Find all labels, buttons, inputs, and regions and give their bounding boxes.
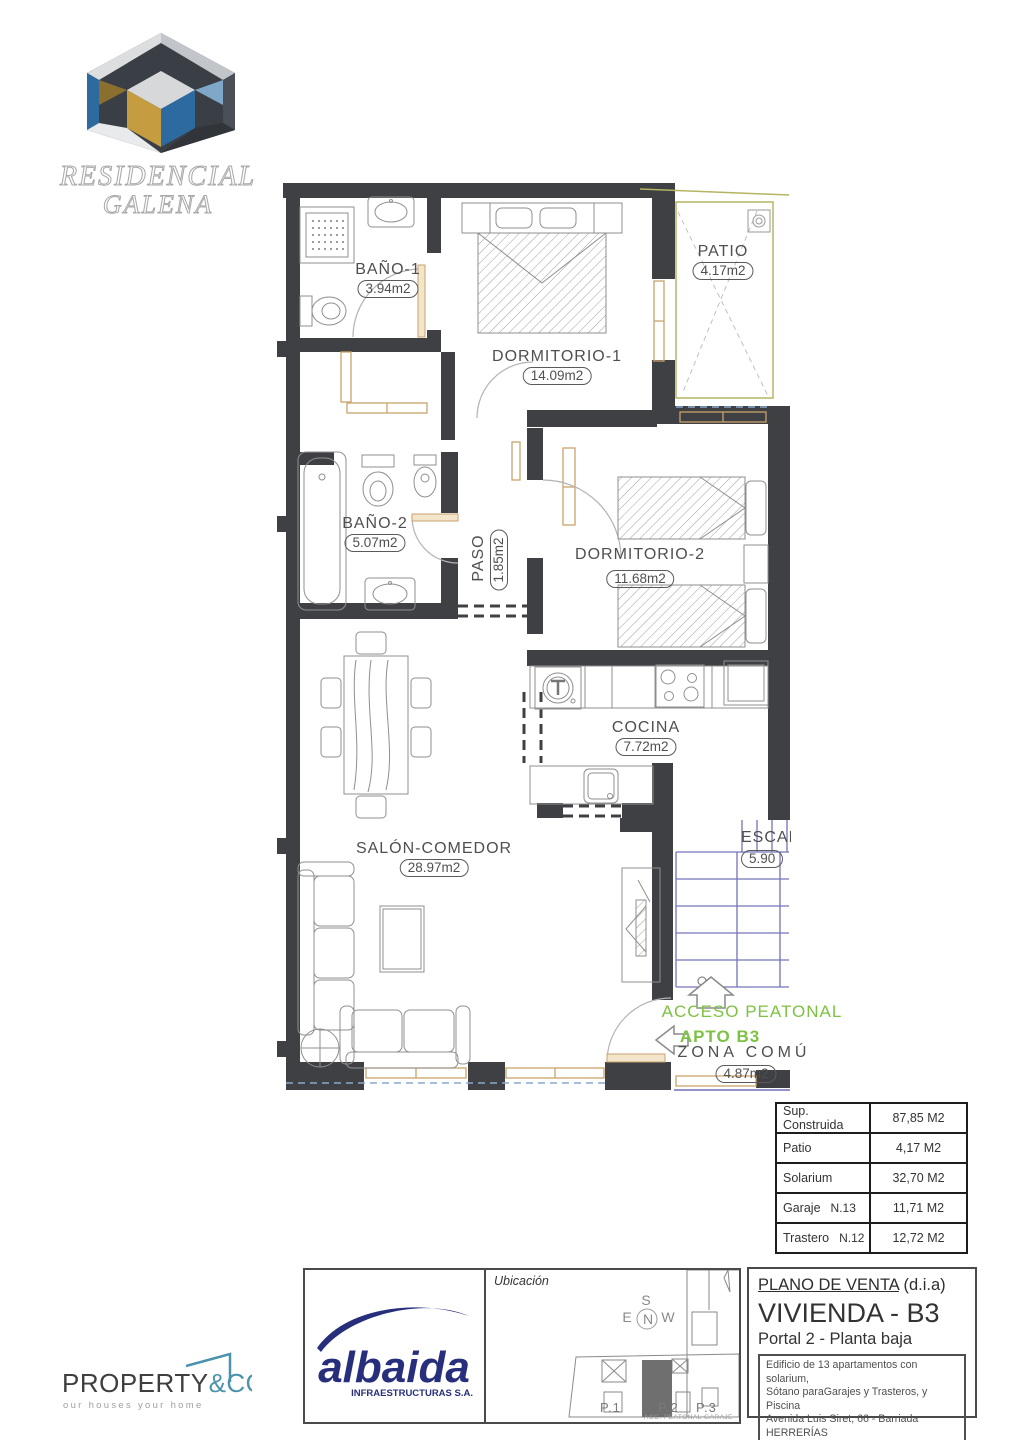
room-label-patio: PATIO <box>698 243 749 261</box>
svg-text:W: W <box>661 1309 675 1325</box>
room-area-dormitorio2: 11.68m2 <box>606 570 674 588</box>
room-area-paso: 1.85m2 <box>490 529 508 590</box>
svg-text:S: S <box>641 1292 650 1308</box>
areas-table: Sup. Construida 87,85 M2 Patio 4,17 M2 S… <box>775 1102 968 1254</box>
room-area-bano2: 5.07m2 <box>344 534 405 552</box>
site-map-caption: ACC. PEATONAL GARAJE <box>644 1414 733 1421</box>
row-value: 32,70 M2 <box>871 1171 966 1185</box>
table-row: GarajeN.13 11,71 M2 <box>777 1192 966 1222</box>
compass-icon: S E N W <box>622 1292 675 1329</box>
room-area-zona-comun: 4.87m2 <box>715 1065 776 1083</box>
room-area-cocina: 7.72m2 <box>615 738 676 756</box>
room-label-bano1: BAÑO-1 <box>355 261 421 279</box>
portal-subtitle: Portal 2 - Planta baja <box>758 1330 966 1349</box>
plan-type-suffix: (d.i.a) <box>904 1276 946 1294</box>
row-label: Solarium <box>783 1171 832 1185</box>
property-name: PROPERTY <box>62 1368 209 1398</box>
floor-plan-page: BAÑO-1 3.94m2 DORMITORIO-1 14.09m2 PATIO… <box>0 0 1018 1440</box>
room-area-patio: 4.17m2 <box>692 262 753 280</box>
shower-dots <box>312 220 344 250</box>
description-line: Edificio de 13 apartamentos con solarium… <box>766 1359 958 1386</box>
room-label-escalera: ESCAL 5.90 <box>741 829 791 875</box>
property-suffix: &CO <box>209 1368 252 1398</box>
portal-label-p1: P.1 <box>600 1400 621 1415</box>
row-note: N.12 <box>839 1231 864 1245</box>
row-label: Trastero <box>783 1231 829 1245</box>
plan-type: PLANO DE VENTA <box>758 1276 899 1294</box>
room-label-cocina: COCINA <box>612 719 680 737</box>
svg-text:PROPERTY&CO: PROPERTY&CO <box>62 1368 252 1398</box>
table-row: Patio 4,17 M2 <box>777 1132 966 1162</box>
residencial-galena-logo: RESIDENCIAL GALENA <box>55 25 270 225</box>
room-label-dormitorio1: DORMITORIO-1 <box>492 348 622 366</box>
building-description: Edificio de 13 apartamentos con solarium… <box>758 1354 966 1440</box>
row-value: 12,72 M2 <box>871 1231 966 1245</box>
row-value: 87,85 M2 <box>871 1111 966 1125</box>
room-label-dormitorio2: DORMITORIO-2 <box>575 546 705 564</box>
row-value: 11,71 M2 <box>871 1201 966 1215</box>
annotation-acceso: ACCESO PEATONAL <box>662 1002 843 1022</box>
title-block-left: albaida INFRAESTRUCTURAS S.A. Ubicación … <box>303 1268 741 1424</box>
svg-text:E: E <box>622 1309 631 1325</box>
unit-title: VIVIENDA - B3 <box>758 1298 966 1329</box>
albaida-name: albaida <box>318 1343 470 1392</box>
plan-type-line: PLANO DE VENTA (d.i.a) <box>758 1276 966 1295</box>
logo-line1: RESIDENCIAL <box>59 161 256 192</box>
row-label: Patio <box>783 1141 812 1155</box>
windows <box>341 281 766 1086</box>
house-cube-icon <box>87 33 235 153</box>
logo-line2: GALENA <box>103 190 213 219</box>
ubicacion-cell: Ubicación S E N W <box>484 1270 739 1422</box>
portal-label-p3: P.3 <box>696 1400 717 1415</box>
openings <box>458 606 622 816</box>
site-map: S E N W <box>486 1270 739 1418</box>
albaida-logo: albaida INFRAESTRUCTURAS S.A. <box>305 1270 484 1418</box>
row-note: N.13 <box>831 1201 856 1215</box>
table-row: Solarium 32,70 M2 <box>777 1162 966 1192</box>
description-line: Avenida Luis Siret, 66 - Barriada HERRER… <box>766 1413 958 1440</box>
albaida-subtitle: INFRAESTRUCTURAS S.A. <box>351 1388 473 1399</box>
table-row: Sup. Construida 87,85 M2 <box>777 1104 966 1132</box>
room-label-paso: PASO <box>470 534 488 581</box>
row-label: Garaje <box>783 1201 821 1215</box>
albaida-logo-cell: albaida INFRAESTRUCTURAS S.A. <box>305 1270 484 1422</box>
title-block-right: PLANO DE VENTA (d.i.a) VIVIENDA - B3 Por… <box>747 1267 977 1418</box>
room-label-salon: SALÓN-COMEDOR <box>356 840 512 858</box>
portal-label-p2: P.2 <box>658 1400 679 1415</box>
property-co-logo: PROPERTY&CO our houses your home <box>62 1350 252 1420</box>
room-area-dormitorio1: 14.09m2 <box>523 367 592 385</box>
property-tagline: our houses your home <box>63 1400 204 1411</box>
room-area-salon: 28.97m2 <box>400 859 469 877</box>
description-line: Sótano paraGarajes y Trasteros, y Piscin… <box>766 1386 958 1413</box>
room-label-bano2: BAÑO-2 <box>342 515 408 533</box>
room-label-zona-comun: ZONA COMÚ <box>678 1044 811 1062</box>
table-row: TrasteroN.12 12,72 M2 <box>777 1222 966 1252</box>
svg-text:N: N <box>643 1311 653 1327</box>
row-value: 4,17 M2 <box>871 1141 966 1155</box>
row-label: Sup. Construida <box>783 1104 869 1132</box>
room-area-bano1: 3.94m2 <box>357 280 418 298</box>
